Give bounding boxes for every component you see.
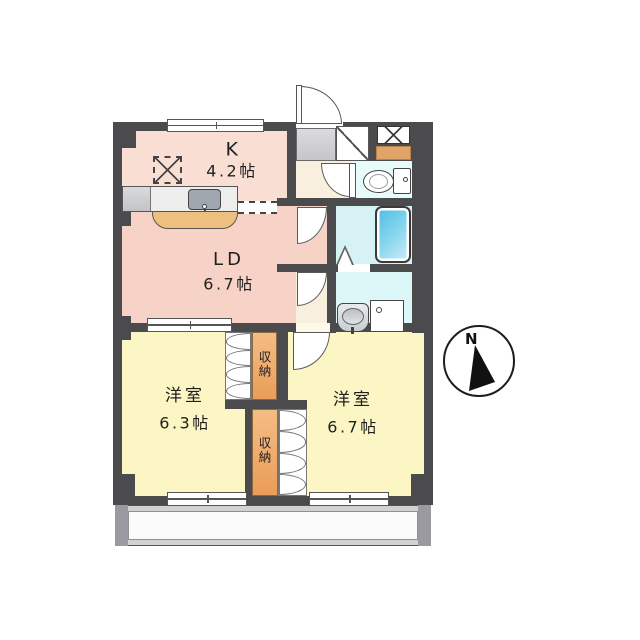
wall-closet-divider [225,400,307,409]
washbasin-bowl [342,308,364,325]
bedroom-left-size-label: 6.3帖 [159,413,210,432]
toilet-door-leaf-icon [349,163,356,198]
wall-right-column [412,161,424,333]
kitchen-label: K [226,139,241,162]
bedroom-right-doorway [296,323,330,332]
bath-door-triangle-icon [338,249,352,265]
kitchen-size-label: 4.2帖 [206,161,257,180]
toilet-tank-icon [393,168,411,194]
washbasin-drain [351,327,354,334]
washing-machine-dot [376,307,382,313]
closet-top-folding-door-icon [225,332,252,400]
compass-north-label: N [465,330,478,348]
compass-needle-icon [445,327,517,399]
bath-door-opening [338,264,370,272]
kitchen-table-icon [152,211,238,229]
kitchen-window-icon [167,119,264,132]
bathtub-icon [375,206,411,263]
floor-plan: N K 4.2帖 LD 6.7帖 洋室 6.3帖 洋室 6.7帖 収 納 収 納 [0,0,640,640]
balcony-inner [128,511,418,540]
closet-bottom-label: 収 納 [259,437,272,466]
pipe-shaft-icon [377,126,410,144]
bedroom-left-label: 洋室 [165,386,205,406]
living-dining-label: LD [213,249,245,271]
entrance-door-arc-icon [300,86,342,124]
refrigerator-space-icon [153,156,182,184]
toilet-bowl-inner [369,174,388,189]
wall-corner-br [411,474,433,505]
compass-icon: N [443,325,515,397]
living-dining-size-label: 6.7帖 [203,274,254,293]
wall-kitchen-right [287,131,296,198]
bedroom-right-size-label: 6.7帖 [327,417,378,436]
bedroom-left-window-icon [167,492,247,506]
entrance-door-leaf-icon [296,85,302,124]
bedroom-right-label: 洋室 [333,390,373,410]
wall-corner-left-ld [113,316,131,340]
wall-bedroom-left-right [245,409,252,496]
shoe-shelf-strip [376,146,411,160]
wall-corner-bl [113,474,135,505]
toilet-button-icon [403,177,408,182]
counter-left-unit [123,187,151,211]
wall-hall-horizontal [277,198,424,206]
wall-right [424,122,433,505]
kitchen-pass-opening [238,201,277,214]
wall-closet-top-right [277,332,288,400]
washing-machine-icon [370,300,404,332]
wall-corner-tl [113,122,136,148]
closet-top-label: 収 納 [259,351,272,380]
entrance-step [296,128,336,161]
closet-bottom-folding-door-icon [278,409,307,496]
shoe-cabinet-icon [336,126,369,161]
wall-left [113,122,122,505]
wall-ld-bottom-b [228,323,296,332]
bedroom-right-window-icon [309,492,389,506]
ld-bedroom-slider-icon [147,318,232,332]
balcony-post-right [418,505,431,546]
balcony-post-left [115,505,128,546]
